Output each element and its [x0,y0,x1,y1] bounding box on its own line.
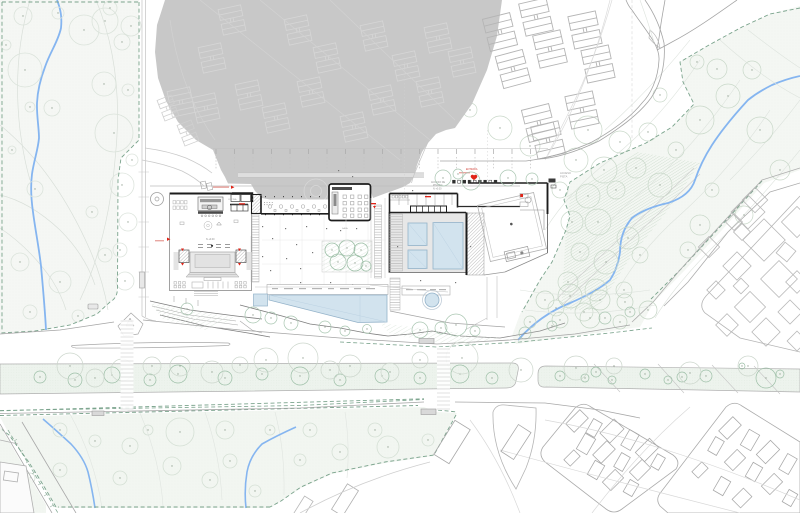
svg-text:ACCESO: ACCESO [560,171,571,175]
svg-text:PISTA: PISTA [560,174,568,178]
svg-text:SALA: SALA [342,227,348,230]
svg-text:N +0.00: N +0.00 [206,238,215,241]
svg-text:COCINA: COCINA [228,198,237,201]
svg-text:ENTRADA: ENTRADA [466,168,478,171]
svg-text:N +0.00: N +0.00 [433,187,442,190]
